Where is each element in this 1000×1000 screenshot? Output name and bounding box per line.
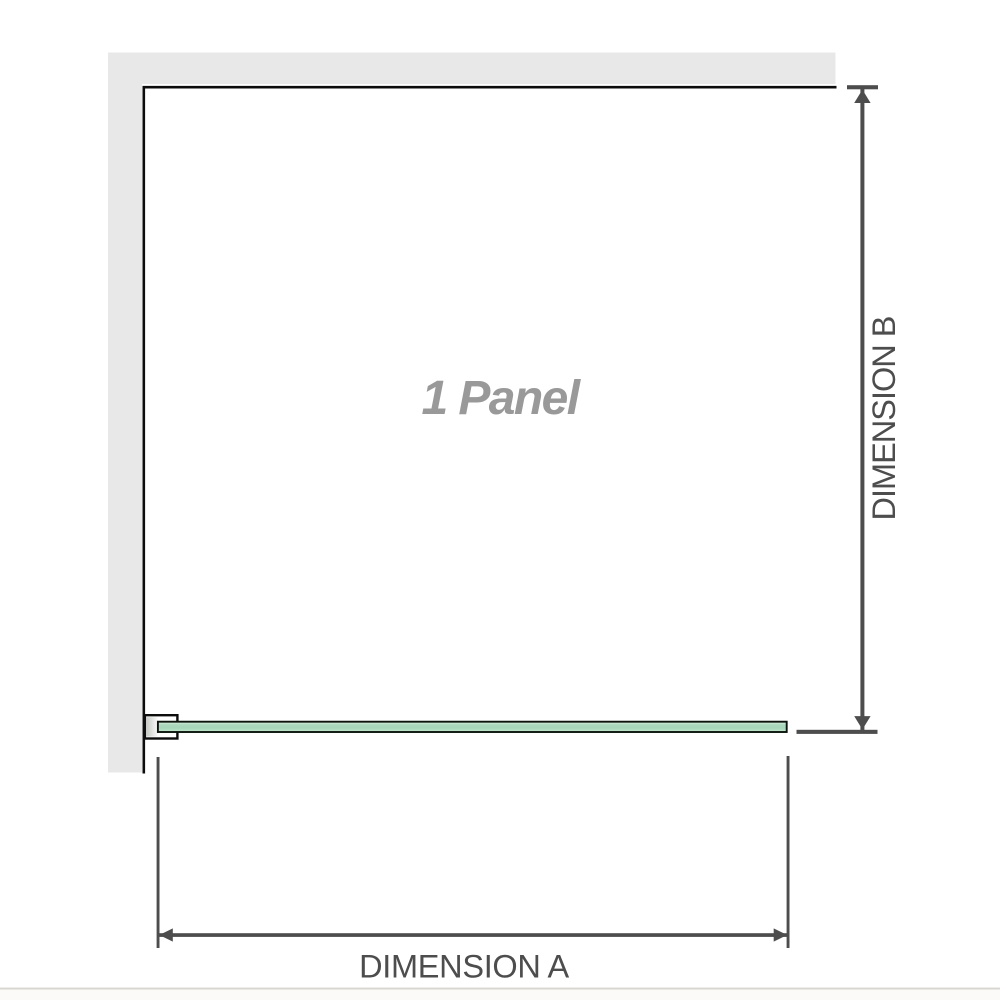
svg-text:1 Panel: 1 Panel [422, 372, 582, 425]
svg-text:DIMENSION B: DIMENSION B [866, 317, 902, 521]
svg-text:DIMENSION A: DIMENSION A [359, 949, 569, 985]
